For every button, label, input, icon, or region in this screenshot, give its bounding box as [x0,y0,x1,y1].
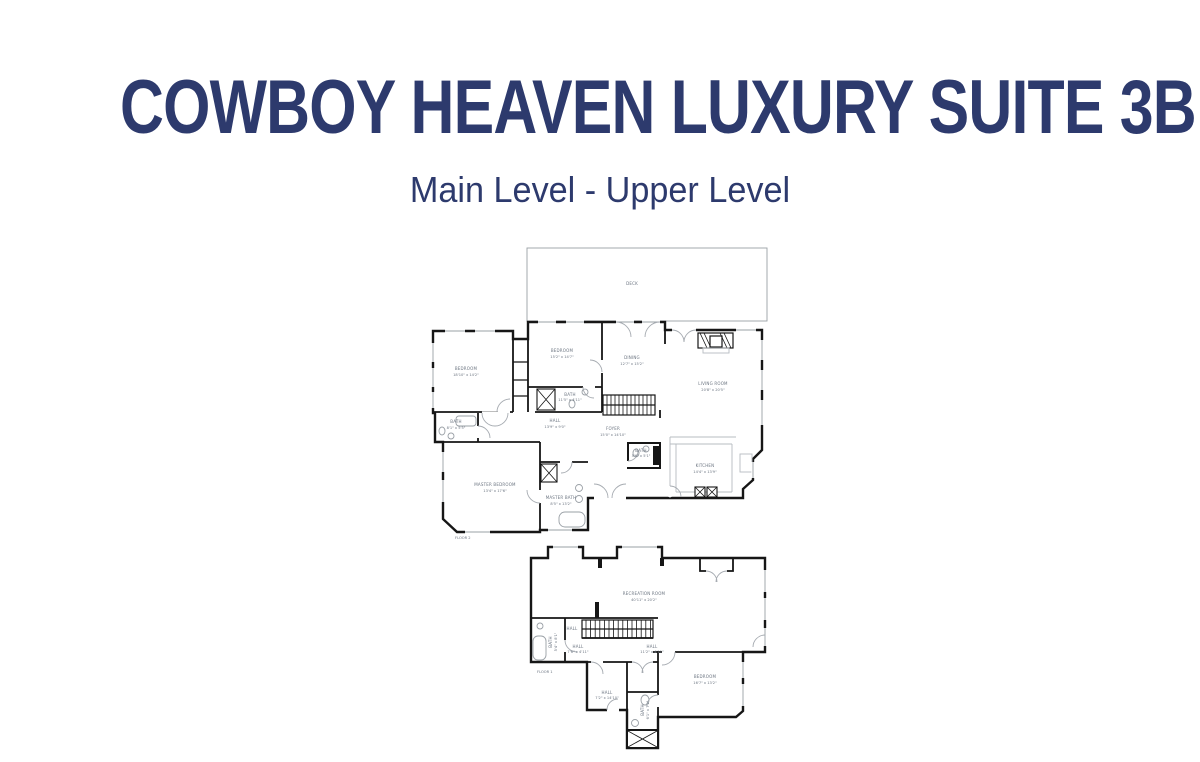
room-dims-bath-lower: 6'1" x 7'2" [646,700,650,719]
room-label-hall-a: HALL [572,644,584,649]
wall-stub-3 [660,558,664,566]
room-label-living-room: LIVING ROOM [698,381,728,386]
room-dims-hall-c: 7'2" x 14'10" [595,696,619,700]
room-label-hall: HALL [549,418,561,423]
room-dims-foyer: 15'0" x 14'10" [600,433,626,437]
room-label-bath-left: BATH [450,419,461,424]
room-label-bedroom: BEDROOM [694,674,717,679]
room-label-bath-middle: BATH [564,392,575,397]
room-label-bath-foyer: BATH [635,448,646,453]
room-label-recreation: RECREATION ROOM [623,591,666,596]
floor1-shaft [627,730,658,748]
floor2-label: FLOOR 2 [455,536,471,540]
room-dims-living-room: 20'8" x 20'5" [701,388,725,392]
room-dims-bedroom-2: 15'2" x 14'7" [550,355,574,359]
room-label-kitchen: KITCHEN [696,463,715,468]
room-label-hall-stairs: HALL [566,626,578,631]
room-label-master-bedroom: MASTER BEDROOM [474,482,516,487]
floorplan-floor-2: DECK BEDROOM 18'10" x 14'2" BEDROOM 15'2… [420,240,776,550]
room-dims-dining: 12'7" x 15'2" [620,362,644,366]
room-dims-hall-b: 11'2" x 4'11" [640,650,664,654]
floorplan-floor-1: RECREATION ROOM 40'11" x 20'2" BATH 5'4"… [515,540,780,762]
room-label-foyer: FOYER [606,426,620,431]
room-label-dining: DINING [624,355,640,360]
page-title: COWBOY HEAVEN LUXURY SUITE 3B [120,70,1080,146]
room-label-hall-c: HALL [601,690,613,695]
room-dims-hall-a: 7'6" x 4'11" [567,650,588,654]
room-label-bedroom-1: BEDROOM [455,366,478,371]
room-label-hall-b: HALL [646,644,658,649]
room-label-master-bath: MASTER BATH [546,495,577,500]
room-dims-kitchen: 14'4" x 13'9" [693,470,717,474]
room-dims-master-bath: 8'5" x 13'2" [550,502,571,506]
floor1-label: FLOOR 1 [537,670,553,674]
wall-stub-1 [595,602,599,618]
page-subtitle: Main Level - Upper Level [30,172,1170,208]
room-label-bedroom-2: BEDROOM [551,348,574,353]
room-dims-bath-middle: 11'5" x 4'11" [558,398,582,402]
room-dims-hall: 13'9" x 9'0" [544,425,565,429]
room-dims-master-bedroom: 13'4" x 17'6" [483,489,507,493]
room-dims-bath-left: 8'1" x 5'5" [447,426,466,430]
deck-outline [527,248,767,321]
room-label-bath-left: BATH [548,636,553,647]
room-label-deck: DECK [626,281,638,286]
room-dims-bedroom: 16'7" x 13'2" [693,681,717,685]
room-label-bath-lower: BATH [640,704,645,715]
room-dims-bath-left: 5'4" x 8'1" [554,632,558,651]
room-dims-bedroom-1: 18'10" x 14'2" [453,373,479,377]
room-dims-recreation: 40'11" x 20'2" [631,598,657,602]
room-dims-bath-foyer: 5'6" x 5'1" [632,454,651,458]
floorplan-poster: COWBOY HEAVEN LUXURY SUITE 3B Main Level… [0,0,1200,762]
wall-stub-2 [598,558,602,568]
